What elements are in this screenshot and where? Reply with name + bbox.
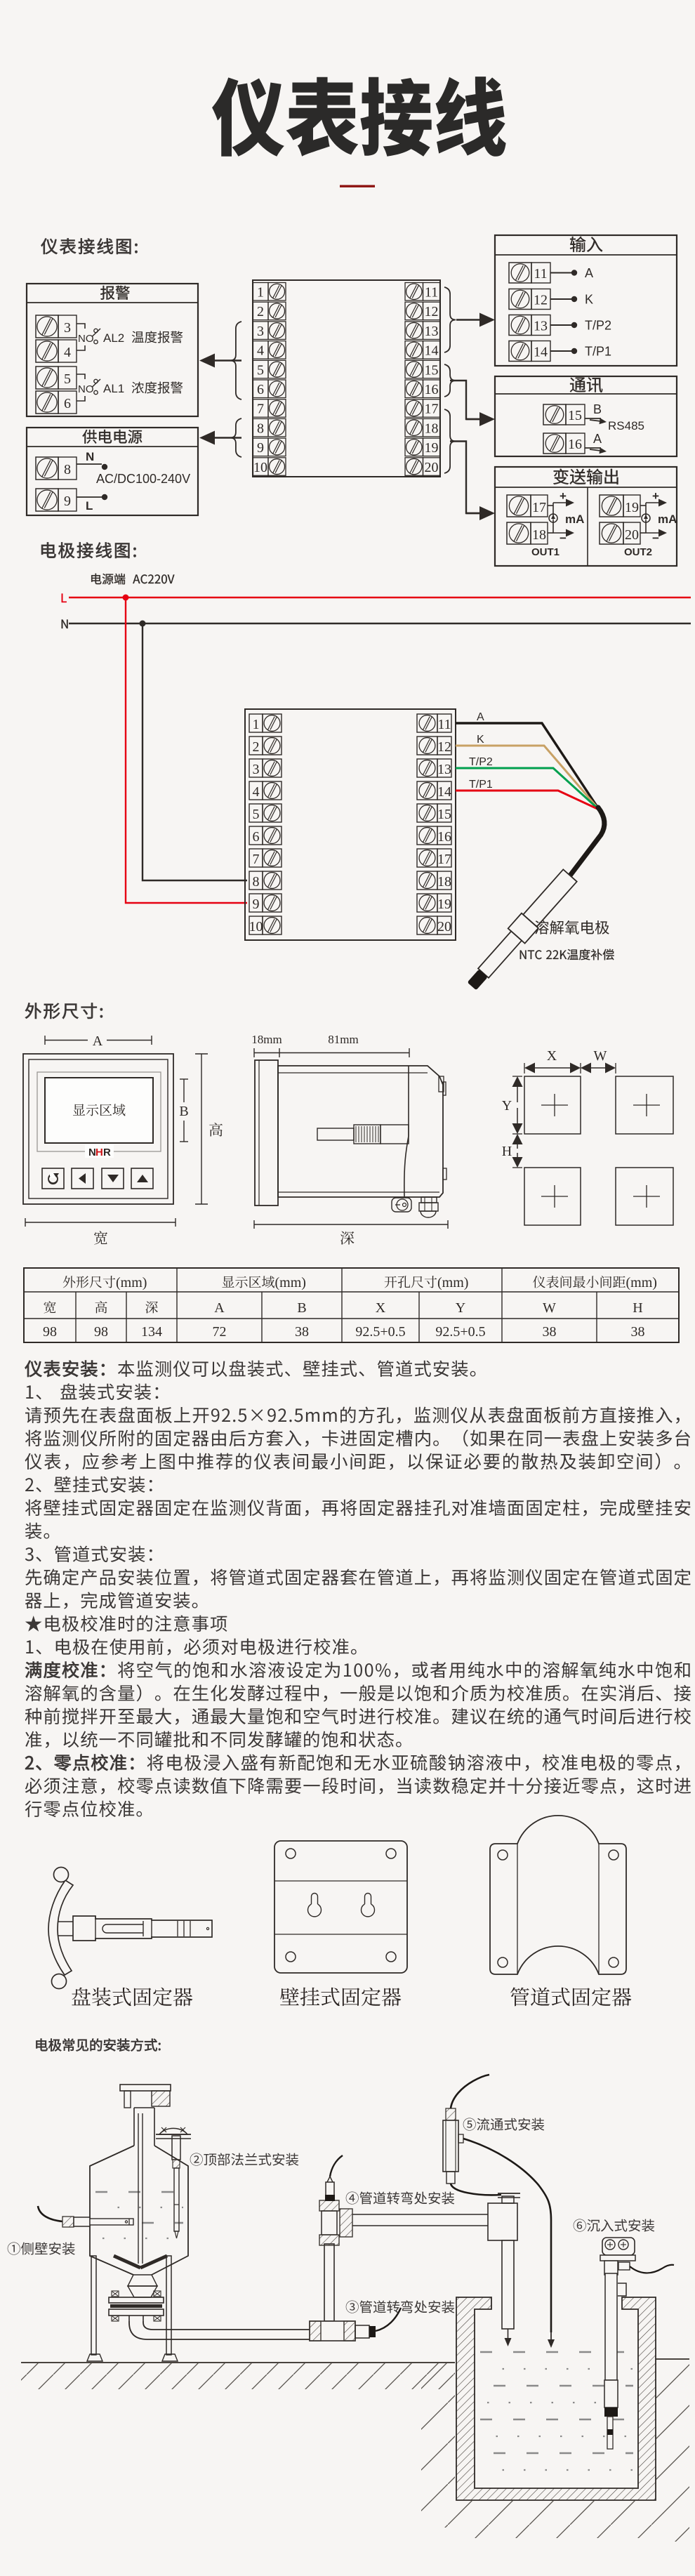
svg-text:6: 6 bbox=[257, 382, 264, 397]
svg-text:T/P2: T/P2 bbox=[469, 756, 493, 768]
svg-text:A: A bbox=[214, 1300, 225, 1316]
svg-text:15: 15 bbox=[425, 362, 439, 378]
svg-text:6: 6 bbox=[64, 396, 71, 411]
svg-text:Y: Y bbox=[502, 1098, 512, 1114]
svg-text:4: 4 bbox=[253, 784, 260, 800]
svg-text:17: 17 bbox=[425, 402, 439, 417]
svg-text:1: 1 bbox=[257, 285, 264, 300]
svg-text:3: 3 bbox=[257, 324, 264, 339]
svg-text:13: 13 bbox=[437, 762, 451, 777]
svg-text:mA: mA bbox=[658, 513, 677, 526]
svg-text:38: 38 bbox=[295, 1324, 309, 1340]
svg-text:11: 11 bbox=[437, 717, 451, 732]
svg-text:N: N bbox=[86, 450, 94, 463]
svg-text:19: 19 bbox=[625, 500, 639, 515]
svg-text:(mm): (mm) bbox=[275, 1275, 306, 1290]
svg-text:10: 10 bbox=[253, 460, 267, 475]
svg-text:19: 19 bbox=[425, 440, 439, 456]
svg-text:15: 15 bbox=[437, 807, 451, 822]
svg-text:H: H bbox=[633, 1300, 642, 1316]
svg-text:T/P1: T/P1 bbox=[469, 779, 493, 791]
svg-text:AC/DC100-240V: AC/DC100-240V bbox=[96, 472, 190, 486]
svg-text:14: 14 bbox=[534, 345, 548, 360]
svg-text:5: 5 bbox=[257, 362, 264, 378]
svg-text:4: 4 bbox=[64, 345, 71, 360]
svg-text:20: 20 bbox=[437, 919, 451, 934]
svg-text:NO: NO bbox=[78, 383, 94, 395]
svg-text:W: W bbox=[543, 1300, 556, 1316]
svg-text:12: 12 bbox=[437, 739, 451, 755]
svg-text:2: 2 bbox=[253, 739, 260, 755]
svg-text:9: 9 bbox=[257, 440, 264, 456]
svg-text:B: B bbox=[297, 1300, 306, 1316]
svg-text:20: 20 bbox=[625, 527, 639, 543]
svg-text:18: 18 bbox=[532, 527, 546, 543]
svg-text:38: 38 bbox=[631, 1324, 645, 1340]
svg-text:NO: NO bbox=[78, 333, 94, 345]
svg-text:X: X bbox=[376, 1300, 386, 1316]
svg-text:OUT1: OUT1 bbox=[531, 546, 560, 558]
svg-text:H: H bbox=[95, 1147, 103, 1158]
svg-text:T/P2: T/P2 bbox=[585, 319, 611, 333]
svg-text:(mm): (mm) bbox=[116, 1275, 147, 1290]
svg-text:18: 18 bbox=[425, 421, 439, 436]
svg-text:9: 9 bbox=[64, 494, 71, 509]
svg-text:9: 9 bbox=[253, 897, 260, 912]
svg-text:R: R bbox=[103, 1147, 111, 1158]
svg-text:RS485: RS485 bbox=[608, 419, 644, 432]
svg-text:AL1: AL1 bbox=[103, 382, 124, 395]
svg-text:16: 16 bbox=[568, 437, 582, 452]
svg-text:6: 6 bbox=[253, 829, 260, 845]
svg-text:134: 134 bbox=[141, 1324, 162, 1340]
svg-text:72: 72 bbox=[213, 1324, 227, 1340]
svg-text:92.5+0.5: 92.5+0.5 bbox=[435, 1324, 485, 1340]
svg-text:11: 11 bbox=[425, 285, 438, 300]
svg-text:3: 3 bbox=[253, 762, 260, 777]
svg-text:(mm): (mm) bbox=[437, 1275, 468, 1290]
svg-text:11: 11 bbox=[534, 266, 547, 282]
svg-text:15: 15 bbox=[568, 408, 582, 423]
svg-text:5: 5 bbox=[64, 371, 71, 387]
svg-text:W: W bbox=[594, 1048, 607, 1064]
svg-text:mA: mA bbox=[565, 513, 584, 526]
svg-text:14: 14 bbox=[437, 784, 451, 800]
svg-text:T/P1: T/P1 bbox=[585, 345, 611, 359]
svg-text:8: 8 bbox=[253, 874, 260, 890]
svg-text:13: 13 bbox=[534, 319, 548, 334]
svg-text:38: 38 bbox=[543, 1324, 557, 1340]
svg-text:13: 13 bbox=[425, 324, 439, 339]
svg-text:7: 7 bbox=[257, 402, 264, 417]
svg-text:98: 98 bbox=[94, 1324, 108, 1340]
svg-text:X: X bbox=[547, 1048, 557, 1064]
svg-text:(mm): (mm) bbox=[626, 1275, 657, 1290]
svg-text:98: 98 bbox=[43, 1324, 57, 1340]
svg-text:8: 8 bbox=[257, 421, 264, 436]
svg-text:10: 10 bbox=[249, 919, 263, 934]
svg-text:K: K bbox=[477, 734, 484, 746]
svg-text:OUT2: OUT2 bbox=[624, 546, 652, 558]
svg-text:19: 19 bbox=[437, 897, 451, 912]
svg-text:17: 17 bbox=[437, 852, 451, 867]
svg-text:5: 5 bbox=[253, 807, 260, 822]
svg-text:17: 17 bbox=[532, 500, 546, 515]
svg-text:3: 3 bbox=[64, 320, 71, 336]
svg-text:4: 4 bbox=[257, 343, 264, 359]
svg-text:7: 7 bbox=[253, 852, 260, 867]
svg-text:+: + bbox=[560, 489, 567, 503]
svg-text:A: A bbox=[93, 1033, 103, 1049]
svg-text:16: 16 bbox=[437, 829, 451, 845]
svg-text:12: 12 bbox=[425, 304, 439, 319]
svg-text:12: 12 bbox=[534, 293, 548, 308]
svg-text:A: A bbox=[585, 266, 593, 280]
svg-text:16: 16 bbox=[425, 382, 439, 397]
svg-text:A: A bbox=[477, 711, 484, 723]
svg-text:18mm: 18mm bbox=[251, 1033, 282, 1046]
svg-text:20: 20 bbox=[425, 460, 439, 475]
svg-text:−: − bbox=[560, 531, 567, 545]
svg-text:AL2: AL2 bbox=[103, 331, 124, 345]
svg-text:B: B bbox=[179, 1104, 188, 1119]
svg-text:L: L bbox=[86, 499, 93, 513]
svg-text:1: 1 bbox=[253, 717, 260, 732]
svg-text:A: A bbox=[593, 432, 602, 446]
svg-text:8: 8 bbox=[64, 462, 71, 477]
svg-text:+: + bbox=[652, 489, 659, 503]
svg-text:H: H bbox=[502, 1144, 512, 1159]
svg-text:2: 2 bbox=[257, 304, 264, 319]
svg-text:K: K bbox=[585, 293, 593, 307]
svg-text:81mm: 81mm bbox=[328, 1033, 358, 1046]
svg-text:18: 18 bbox=[437, 874, 451, 890]
svg-text:14: 14 bbox=[425, 343, 439, 359]
svg-text:Y: Y bbox=[456, 1300, 465, 1316]
svg-text:B: B bbox=[593, 402, 602, 416]
svg-text:−: − bbox=[652, 531, 659, 545]
svg-text:92.5+0.5: 92.5+0.5 bbox=[355, 1324, 405, 1340]
